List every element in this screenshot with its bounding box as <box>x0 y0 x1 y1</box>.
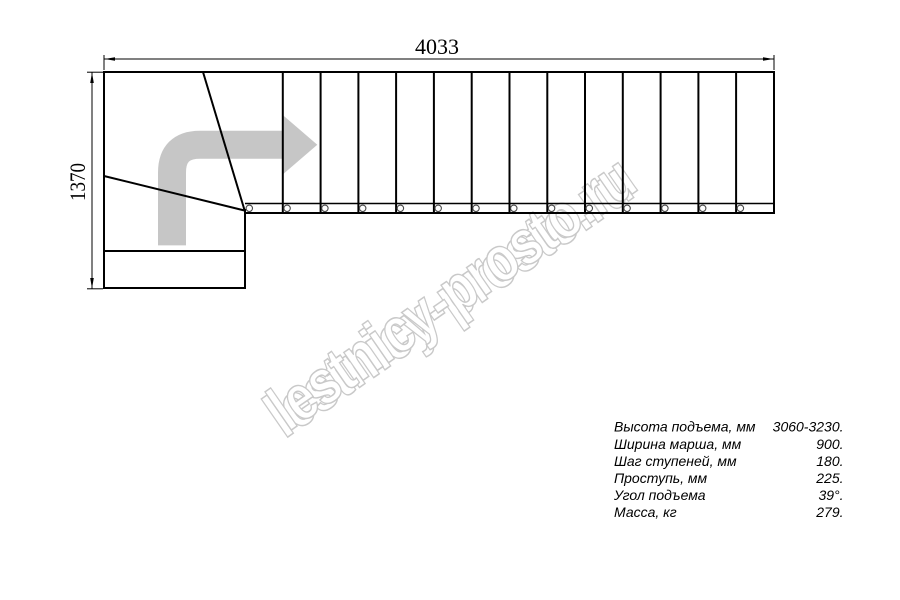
svg-text:900.: 900. <box>816 436 843 452</box>
svg-text:Шаг ступеней, мм: Шаг ступеней, мм <box>614 453 737 469</box>
svg-text:180.: 180. <box>816 453 843 469</box>
svg-text:225.: 225. <box>815 470 843 486</box>
svg-text:Масса, кг: Масса, кг <box>614 504 677 520</box>
svg-text:Проступь, мм: Проступь, мм <box>614 470 708 486</box>
svg-text:Угол подъема: Угол подъема <box>613 487 706 503</box>
svg-text:Ширина марша, мм: Ширина марша, мм <box>614 436 742 452</box>
svg-text:4033: 4033 <box>415 34 459 59</box>
svg-text:279.: 279. <box>815 504 843 520</box>
svg-text:Высота подъема, мм: Высота подъема, мм <box>614 419 756 435</box>
svg-text:3060-3230.: 3060-3230. <box>773 419 844 435</box>
svg-text:lestnicy-prosto.ru: lestnicy-prosto.ru <box>255 141 648 444</box>
svg-text:39°.: 39°. <box>818 487 843 503</box>
svg-text:1370: 1370 <box>65 163 90 201</box>
